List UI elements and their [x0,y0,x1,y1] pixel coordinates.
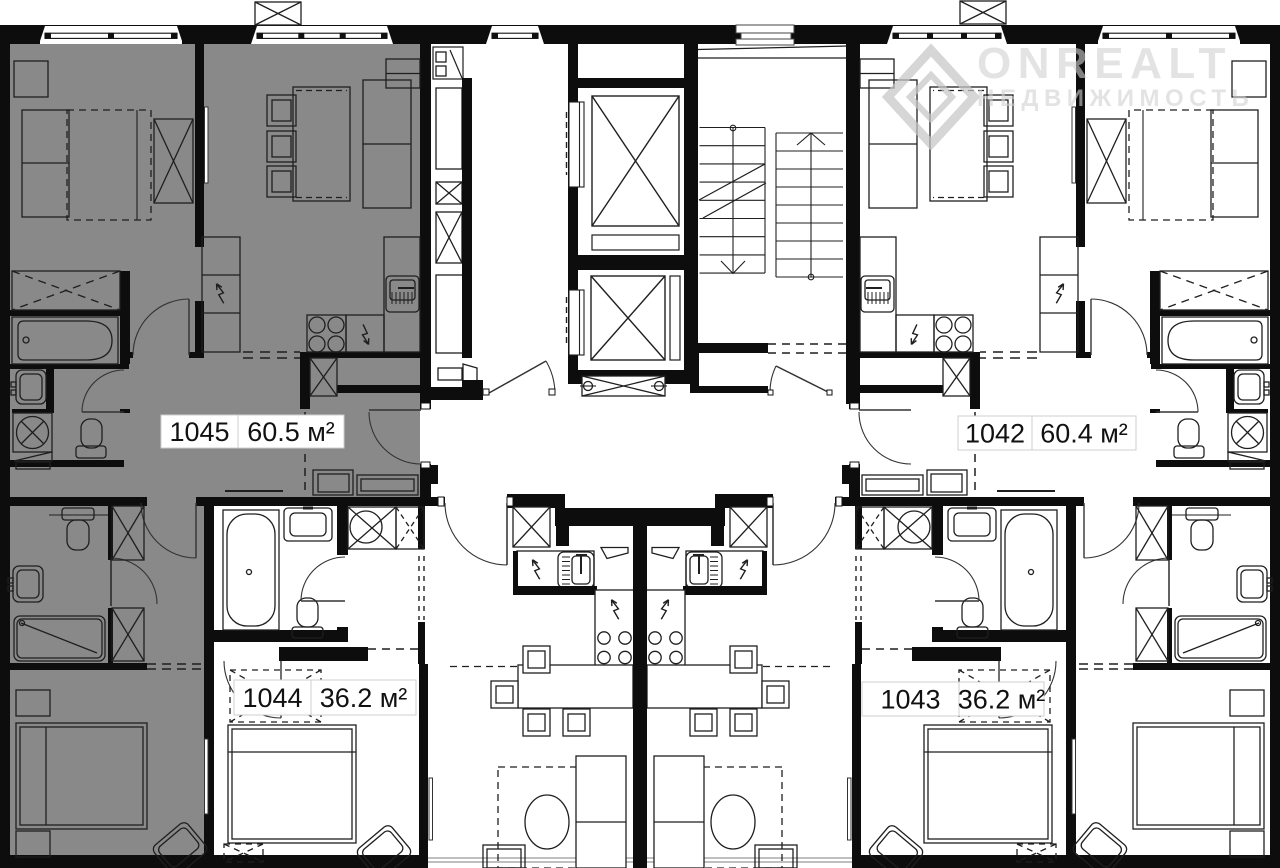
svg-text:1045: 1045 [169,417,229,447]
svg-text:36.2 м²: 36.2 м² [320,683,408,713]
svg-text:НЕДВИЖИМОСТЬ: НЕДВИЖИМОСТЬ [977,85,1254,112]
svg-text:1042: 1042 [965,419,1025,449]
svg-text:60.4 м²: 60.4 м² [1040,419,1128,449]
svg-text:1043: 1043 [880,685,940,715]
svg-text:60.5 м²: 60.5 м² [247,417,335,447]
svg-text:36.2 м²: 36.2 м² [958,685,1046,715]
svg-text:1044: 1044 [242,683,302,713]
svg-text:ONREALT: ONREALT [977,39,1232,88]
